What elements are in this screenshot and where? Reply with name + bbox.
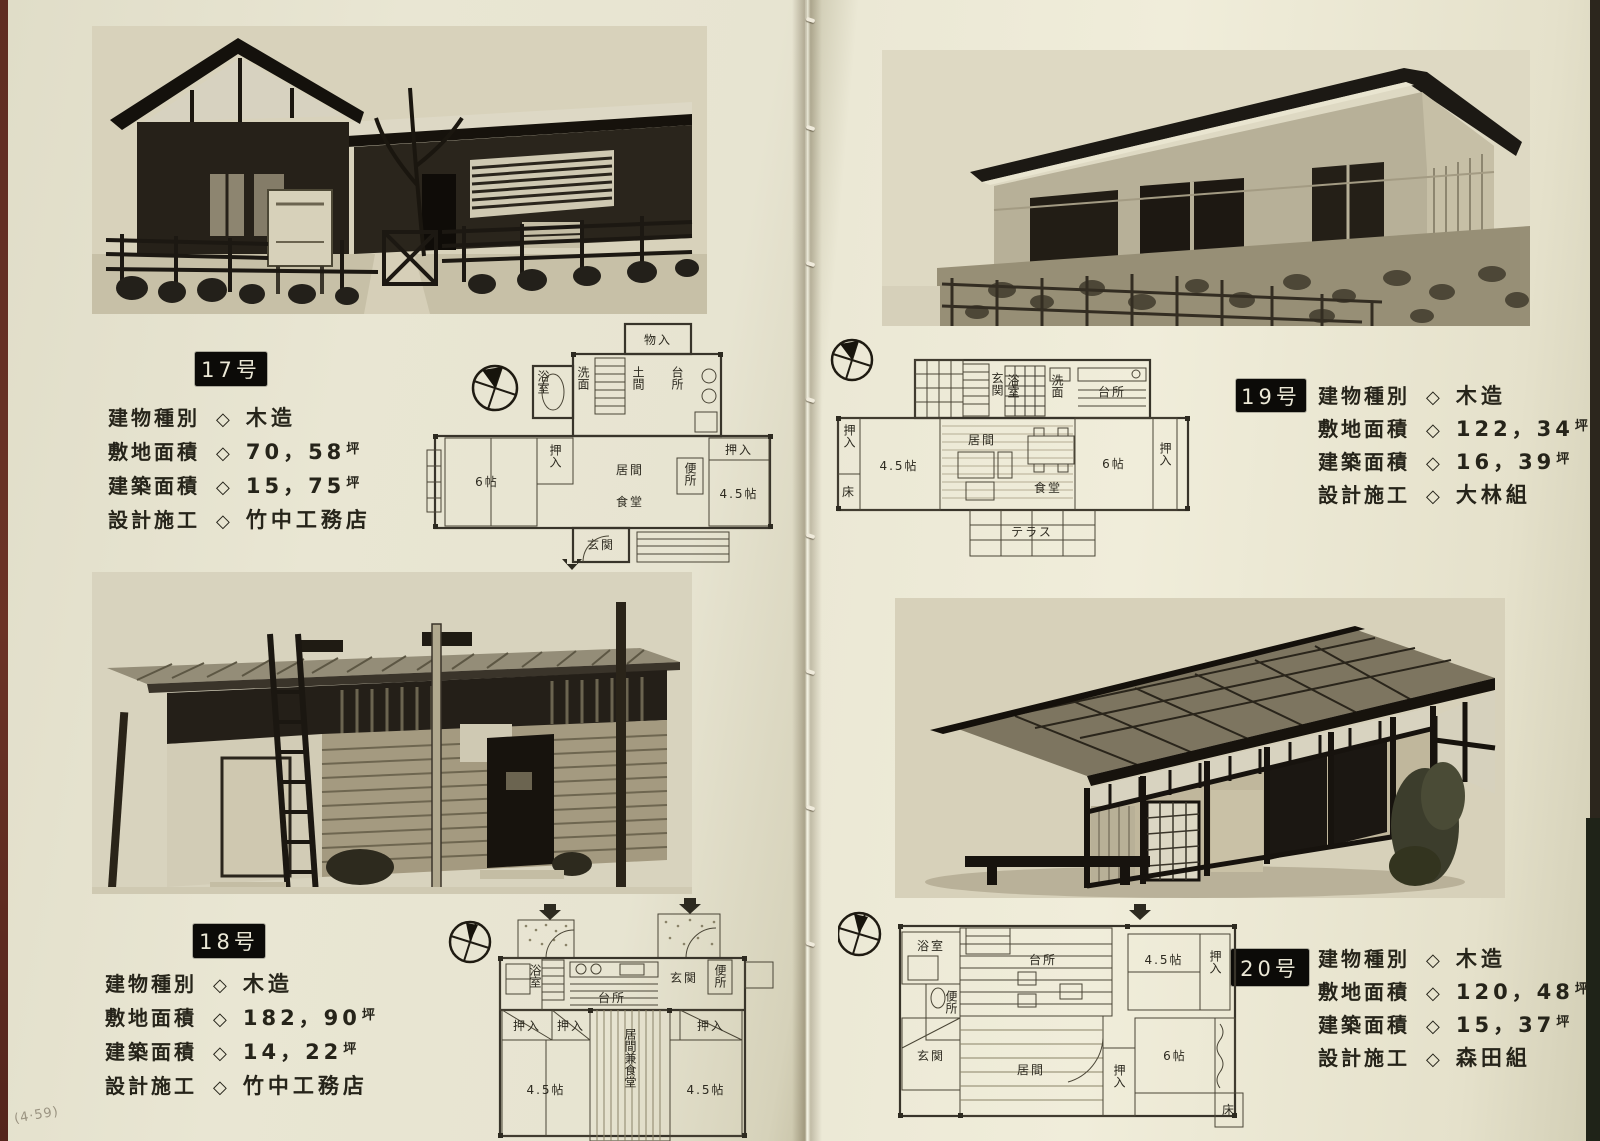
spec-row: 敷地面積 ◇ 70，58 坪 [108,436,372,470]
compass-icon [832,340,872,380]
room-label: 便所 [713,964,727,988]
room-label: 6帖 [475,474,499,489]
spec-value: 木造 [1456,380,1506,410]
diamond-icon: ◇ [216,443,230,464]
spec-label: 設計施工 [105,1070,205,1099]
room-label: 押入 [697,1019,725,1033]
spec-label: 敷地面積 [108,436,208,465]
room-label: 押入 [513,1019,541,1033]
spec-row: 設計施工 ◇ 竹中工務店 [108,504,372,538]
spec-row: 敷地面積 ◇ 182，90 坪 [105,1002,375,1036]
spec-unit: 坪 [1575,978,1588,997]
room-label: 4.5帖 [879,458,918,473]
diamond-icon: ◇ [1426,983,1440,1004]
spec-row: 建築面積 ◇ 16，39 坪 [1318,446,1588,479]
spec-row: 建物種別 ◇ 木造 [105,968,375,1002]
house-17-floor-plan: 物入 洗面 浴室 土間 台所 6帖 押入 [425,318,780,573]
spec-value: 122，34 [1456,413,1574,443]
spec-row: 建物種別 ◇ 木造 [108,402,372,436]
room-label: 押入 [842,424,856,448]
room-label: 便所 [944,990,958,1014]
house-17-tag: 17号 [195,352,267,386]
compass-icon [450,922,490,962]
room-label: 4.5帖 [1144,952,1183,967]
spec-value: 16，39 [1456,446,1555,476]
spec-value: 70，58 [246,436,345,466]
room-label: 押入 [725,443,753,457]
spec-label: 敷地面積 [1318,413,1418,442]
room-label: 食堂 [1034,480,1062,495]
room-label: 玄関 [587,537,615,552]
book-spread: ? [0,0,1600,1141]
house-19-photo [882,50,1530,326]
spec-unit: 坪 [1556,1011,1569,1030]
spec-row: 建築面積 ◇ 15，37 坪 [1318,1009,1588,1042]
book-cover-edge [0,0,8,1141]
diamond-icon: ◇ [213,1009,227,1030]
house-17-photo [92,26,707,314]
spec-row: 建築面積 ◇ 14，22 坪 [105,1036,375,1070]
spec-value: 竹中工務店 [243,1070,368,1100]
spec-row: 建物種別 ◇ 木造 [1318,380,1588,413]
room-label: 台所 [1029,952,1057,967]
room-label: 4.5帖 [686,1082,725,1097]
spec-value: 森田組 [1456,1042,1531,1072]
spec-label: 建物種別 [105,968,205,997]
room-label: 4.5帖 [719,486,758,501]
compass-icon [473,366,517,410]
room-label: 台所 [1098,384,1126,399]
house-17-specs: 建物種別 ◇ 木造 敷地面積 ◇ 70，58 坪 建築面積 ◇ 15，75 坪 … [108,402,372,538]
diamond-icon: ◇ [1426,950,1440,971]
compass-icon [838,913,880,955]
room-label: 押入 [548,444,562,468]
diamond-icon: ◇ [1426,387,1440,408]
spec-row: 設計施工 ◇ 森田組 [1318,1042,1588,1075]
house-18-photo [92,572,692,894]
spec-value: 木造 [246,402,296,432]
spec-unit: 坪 [1575,415,1588,434]
binding-gutter [792,0,822,1141]
diamond-icon: ◇ [1426,486,1440,507]
diamond-icon: ◇ [1426,1016,1440,1037]
book-cover-edge [1586,818,1600,1141]
spec-value: 15，75 [246,470,345,500]
room-label: テラス [1011,525,1053,539]
spec-label: 建物種別 [108,402,208,431]
room-label: 浴室 [917,938,945,953]
house-19-specs: 建物種別 ◇ 木造 敷地面積 ◇ 122，34 坪 建築面積 ◇ 16，39 坪… [1318,380,1588,512]
spec-row: 敷地面積 ◇ 122，34 坪 [1318,413,1588,446]
diamond-icon: ◇ [1426,453,1440,474]
spec-label: 設計施工 [1318,1042,1418,1071]
spec-row: 建物種別 ◇ 木造 [1318,943,1588,976]
room-label: 浴室 [1006,374,1020,398]
spec-label: 建物種別 [1318,380,1418,409]
diamond-icon: ◇ [216,477,230,498]
room-label: 物入 [644,333,672,347]
house-20-floor-plan: 浴室 便所 台所 4.5帖 [838,898,1258,1141]
room-label: 居間兼食堂 [623,1028,637,1088]
room-label: 押入 [1112,1064,1126,1088]
diamond-icon: ◇ [1426,1049,1440,1070]
spec-value: 大林組 [1456,479,1531,509]
spec-value: 木造 [1456,943,1506,973]
diamond-icon: ◇ [216,409,230,430]
spec-label: 敷地面積 [1318,976,1418,1005]
diamond-icon: ◇ [216,511,230,532]
room-label: 玄関 [917,1048,945,1063]
room-label: 台所 [670,365,684,390]
spec-row: 敷地面積 ◇ 120，48 坪 [1318,976,1588,1009]
room-label: 床 [842,485,856,499]
house-18-tag: 18号 [193,924,265,958]
house-18-specs: 建物種別 ◇ 木造 敷地面積 ◇ 182，90 坪 建築面積 ◇ 14，22 坪… [105,968,375,1104]
room-label: 便所 [683,462,697,486]
room-label: 玄関 [670,970,698,985]
spec-value: 15，37 [1456,1009,1555,1039]
room-label: 洗面 [1050,374,1064,398]
room-label: 浴室 [536,370,550,394]
house-18-floor-plan: 浴室 台所 玄関 便所 押入 [440,898,790,1141]
spec-unit: 坪 [346,438,359,457]
spec-unit: 坪 [346,472,359,491]
diamond-icon: ◇ [213,1077,227,1098]
spec-row: 建築面積 ◇ 15，75 坪 [108,470,372,504]
spec-unit: 坪 [1556,448,1569,467]
diamond-icon: ◇ [1426,420,1440,441]
house-19-tag: 19号 [1236,379,1306,412]
spec-label: 敷地面積 [105,1002,205,1031]
spec-label: 設計施工 [1318,479,1418,508]
spec-row: 設計施工 ◇ 大林組 [1318,479,1588,512]
room-label: 浴室 [528,964,542,988]
house-19-floor-plan: 玄関 浴室 洗面 台所 押入 床 4. [820,330,1210,565]
house-20-specs: 建物種別 ◇ 木造 敷地面積 ◇ 120，48 坪 建築面積 ◇ 15，37 坪… [1318,943,1588,1075]
room-label: 6帖 [1163,1048,1187,1063]
room-label: 押入 [1208,950,1222,974]
room-label: 居間 [968,433,996,447]
room-label: 玄関 [990,371,1004,396]
room-label: 4.5帖 [526,1082,565,1097]
spec-value: 14，22 [243,1036,342,1066]
spec-label: 建築面積 [1318,446,1418,475]
spec-label: 建築面積 [108,470,208,499]
spec-label: 建築面積 [1318,1009,1418,1038]
spec-value: 木造 [243,968,293,998]
room-label: 洗面 [576,366,590,390]
diamond-icon: ◇ [213,1043,227,1064]
spec-row: 設計施工 ◇ 竹中工務店 [105,1070,375,1104]
spec-unit: 坪 [343,1038,356,1057]
house-20-photo: ? [895,598,1505,898]
room-label: 押入 [557,1019,585,1033]
spec-label: 建築面積 [105,1036,205,1065]
room-label: 居間 [1017,1063,1045,1077]
room-label: 土間 [631,366,645,390]
room-label: 居間 [616,463,644,477]
spec-value: 120，48 [1456,976,1574,1006]
diamond-icon: ◇ [213,975,227,996]
room-label: 押入 [1158,442,1172,466]
room-label: 食堂 [616,494,644,509]
room-label: 6帖 [1102,456,1126,471]
spec-label: 設計施工 [108,504,208,533]
spec-value: 182，90 [243,1002,361,1032]
room-label: 台所 [598,990,626,1005]
spec-label: 建物種別 [1318,943,1418,972]
spec-value: 竹中工務店 [246,504,371,534]
spec-unit: 坪 [362,1004,375,1023]
